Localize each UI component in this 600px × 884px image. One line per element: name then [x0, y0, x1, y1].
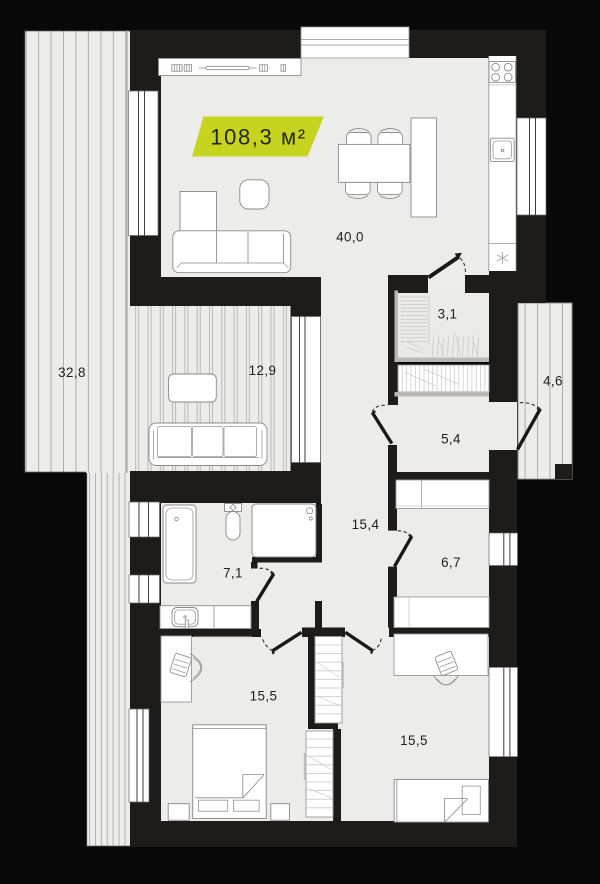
svg-text:3,1: 3,1	[438, 306, 458, 321]
svg-text:15,4: 15,4	[352, 517, 380, 532]
svg-text:32,8: 32,8	[58, 365, 86, 380]
svg-text:108,3 м²: 108,3 м²	[210, 125, 306, 150]
svg-text:40,0: 40,0	[336, 229, 364, 244]
svg-text:5,4: 5,4	[441, 431, 461, 446]
svg-text:15,5: 15,5	[400, 733, 428, 748]
svg-text:15,5: 15,5	[250, 688, 278, 703]
svg-text:7,1: 7,1	[223, 565, 243, 580]
svg-text:4,6: 4,6	[543, 373, 563, 388]
svg-text:6,7: 6,7	[441, 555, 461, 570]
svg-text:12,9: 12,9	[249, 363, 277, 378]
